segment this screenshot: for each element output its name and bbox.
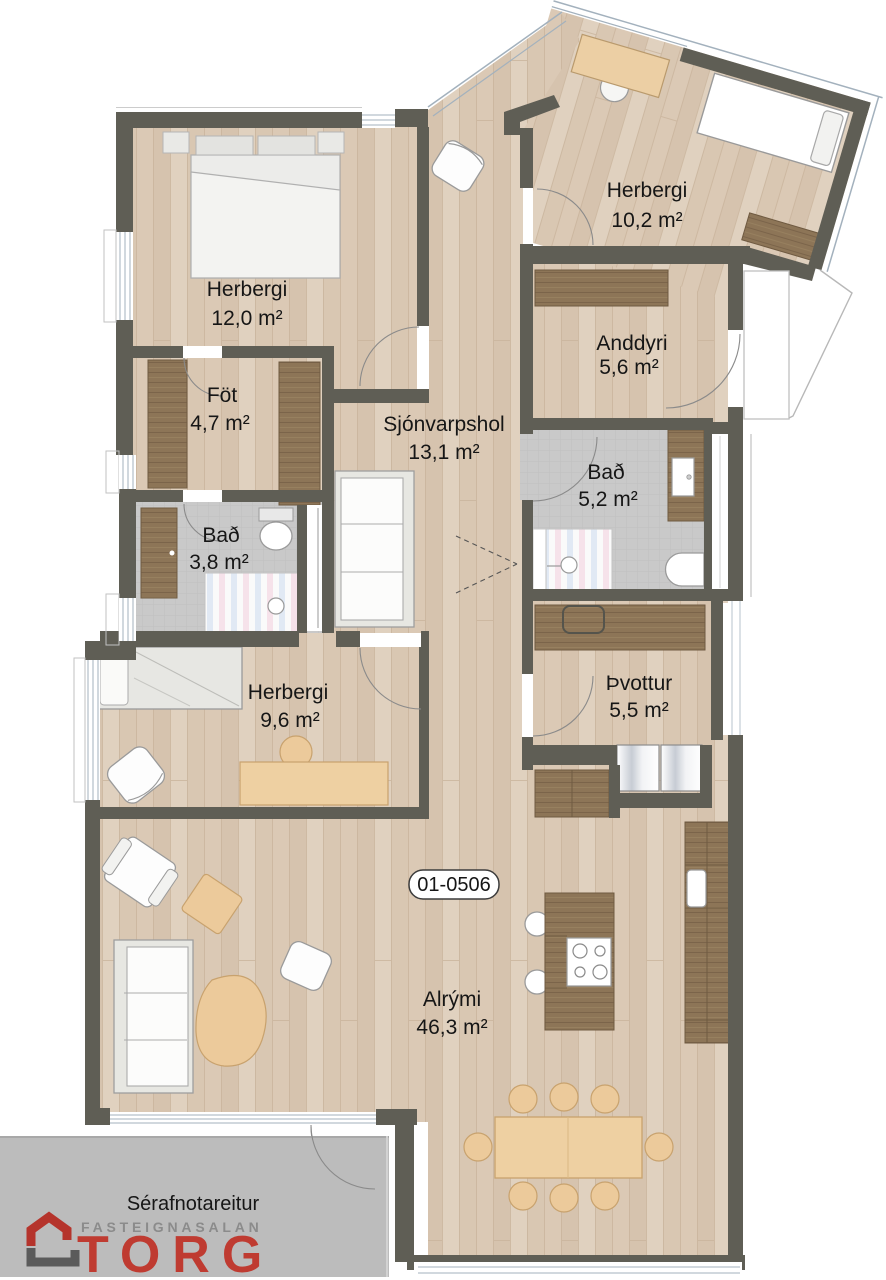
svg-text:5,6 m²: 5,6 m²	[599, 356, 659, 379]
svg-text:Anddyri: Anddyri	[596, 332, 667, 355]
svg-text:Þvottur: Þvottur	[606, 672, 673, 695]
svg-text:Föt: Föt	[207, 384, 238, 407]
svg-text:Herbergi: Herbergi	[607, 179, 688, 202]
svg-text:01-0506: 01-0506	[417, 874, 490, 896]
svg-text:Sjónvarpshol: Sjónvarpshol	[383, 413, 504, 436]
svg-text:46,3 m²: 46,3 m²	[416, 1016, 487, 1039]
svg-text:Bað: Bað	[202, 524, 239, 547]
svg-text:Alrými: Alrými	[423, 988, 481, 1011]
svg-text:Herbergi: Herbergi	[248, 681, 329, 704]
svg-text:5,5 m²: 5,5 m²	[609, 699, 669, 722]
svg-text:Bað: Bað	[587, 461, 624, 484]
svg-text:4,7 m²: 4,7 m²	[190, 412, 250, 435]
svg-text:10,2 m²: 10,2 m²	[611, 209, 682, 232]
svg-text:13,1 m²: 13,1 m²	[408, 441, 479, 464]
svg-text:12,0 m²: 12,0 m²	[211, 307, 282, 330]
svg-text:9,6 m²: 9,6 m²	[260, 709, 320, 732]
svg-text:Sérafnotareitur: Sérafnotareitur	[127, 1193, 260, 1215]
svg-text:3,8 m²: 3,8 m²	[189, 551, 249, 574]
svg-text:TORG: TORG	[77, 1226, 274, 1280]
svg-text:5,2 m²: 5,2 m²	[578, 488, 638, 511]
svg-text:Herbergi: Herbergi	[207, 278, 288, 301]
